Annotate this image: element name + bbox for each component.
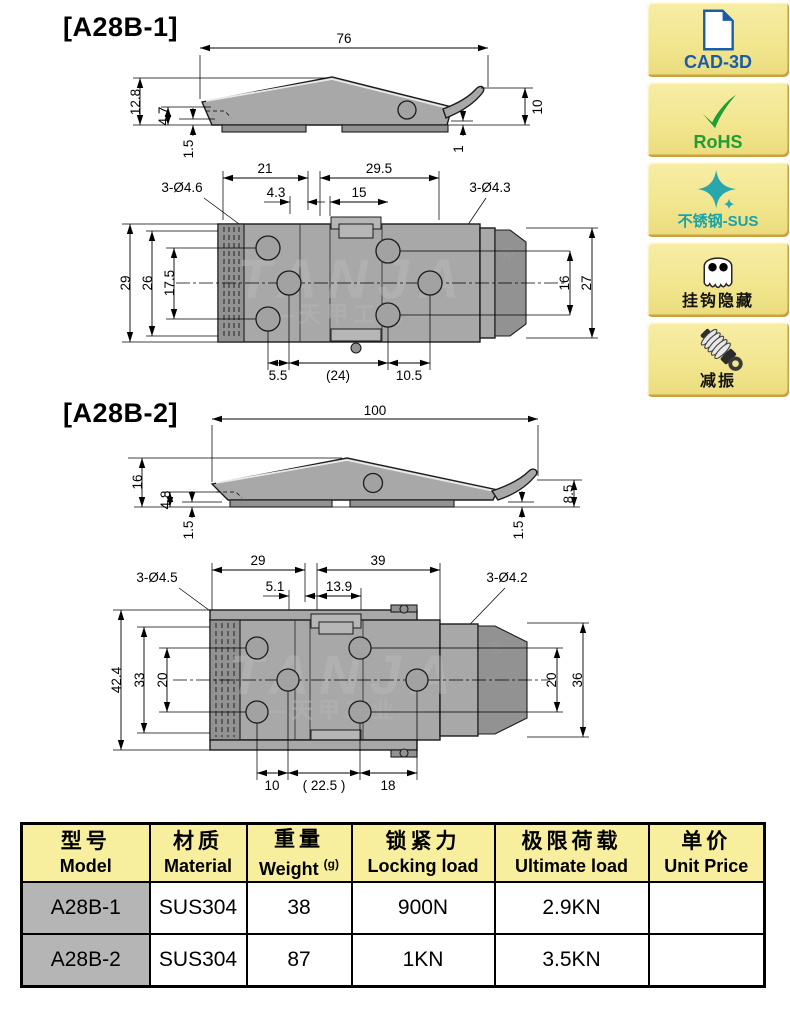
header-ultimate-load: 极限荷载 Ultimate load [495,824,649,883]
a28b1-top-view-drawing: 21 29.5 4.3 15 3-Ø4.6 3-Ø4.3 TANJA —天甲工业… [118,158,640,398]
dim-label: 1 [451,145,466,153]
badge-label: 减振 [700,373,736,391]
dim-label: 1.5 [181,140,196,159]
feature-badges: CAD-3D RoHS 不锈钢-SUS [647,2,789,402]
badge-label: CAD-3D [684,53,752,71]
registered-mark: ® [500,245,514,266]
header-model: 型号 Model [22,824,150,883]
pivot-hole [398,101,416,119]
ghost-icon [696,248,740,292]
table-row: A28B-2 SUS304 87 1KN 3.5KN [22,934,765,987]
hole-callout-left: 3-Ø4.6 [161,180,202,195]
mount-hole [406,669,428,691]
datasheet-page: [A28B-1] [A28B-2] 76 12.8 4.7 1.5 [0,0,790,1016]
dim-label: 12.8 [128,89,143,115]
cell-model: A28B-2 [22,934,150,987]
dim-label: 20 [155,672,170,687]
mount-hole [246,701,268,723]
dim-label: 1.5 [181,521,196,540]
dim-label: 76 [336,31,351,46]
a28b1-side-view-drawing: 76 12.8 4.7 1.5 10 1 [75,25,565,165]
dim-label: 13.9 [326,579,352,594]
dim-label: 29 [118,275,133,290]
dim-label: (24) [326,368,350,383]
mount-hole [349,701,371,723]
cell-unit-price [649,882,765,934]
mount-hole [418,271,442,295]
dim-label: 20 [544,672,559,687]
dim-label: 29.5 [366,161,392,176]
dim-label: 5.1 [266,579,285,594]
cell-weight: 87 [247,934,352,987]
mount-hole [349,637,371,659]
dim-label: 8.5 [561,485,576,504]
mount-hole [277,669,299,691]
badge-sus: 不锈钢-SUS [647,162,789,237]
latch-hook [443,86,484,118]
a28b2-side-view-drawing: 100 16 4.8 1.5 1.5 8.5 [78,408,598,543]
latch-hook [492,469,537,500]
mount-hole [376,239,400,263]
cell-ultimate-load: 2.9KN [495,882,649,934]
pivot-hole [364,474,383,493]
cell-locking-load: 1KN [352,934,495,987]
cell-material: SUS304 [150,882,247,934]
dim-label: 17.5 [162,270,177,296]
dim-label: 16 [557,275,572,290]
badge-damping: 减振 [647,322,789,397]
dim-label: 29 [250,553,265,568]
badge-cad-3d: CAD-3D [647,2,789,77]
dim-label: 36 [570,672,585,687]
dim-label: 26 [140,275,155,290]
latch-body-side [212,458,498,500]
dim-label: 1.5 [511,521,526,540]
mount-hole [246,637,268,659]
registered-mark: ® [489,638,503,659]
dim-label: 5.5 [269,368,288,383]
dim-label: 39 [370,553,385,568]
mount-hole [256,307,280,331]
bottom-plate [210,740,417,750]
spec-table: 型号 Model 材质 Material 重量 Weight (g) 锁紧力 L… [20,822,766,988]
brand-watermark-cn: —天甲工业— [272,302,434,327]
badge-label: 挂钩隐藏 [682,293,754,311]
dim-label: 10 [264,778,279,793]
header-unit-price: 单价 Unit Price [649,824,765,883]
mount-hole [256,236,280,260]
dim-label: 15 [351,185,366,200]
cell-weight: 38 [247,882,352,934]
dim-label: 100 [364,403,387,418]
cell-locking-load: 900N [352,882,495,934]
cell-model: A28B-1 [22,882,150,934]
cell-ultimate-load: 3.5KN [495,934,649,987]
screw-detail [351,343,361,353]
badge-label: RoHS [694,133,743,151]
table-header-row: 型号 Model 材质 Material 重量 Weight (g) 锁紧力 L… [22,824,765,883]
latch-body-side [202,77,452,125]
dim-label: 4.7 [156,107,171,126]
badge-rohs: RoHS [647,82,789,157]
mount-hole [376,303,400,327]
dim-label: 10.5 [396,368,422,383]
dim-label: 33 [132,672,147,687]
dim-label: 21 [257,161,272,176]
dim-label: 42.4 [109,666,124,693]
checkmark-icon [694,88,742,132]
sparkle-icon [695,168,741,212]
hole-callout-right: 3-Ø4.2 [486,570,527,585]
cell-unit-price [649,934,765,987]
header-weight: 重量 Weight (g) [247,824,352,883]
badge-label: 不锈钢-SUS [678,213,759,231]
hole-callout-left: 3-Ø4.5 [136,570,177,585]
dim-label: ( 22.5 ) [303,778,346,793]
dim-label: 27 [579,275,594,290]
dim-label: 4.3 [267,185,286,200]
header-material: 材质 Material [150,824,247,883]
shock-absorber-icon [695,328,741,372]
dim-label: 10 [530,99,545,114]
cell-material: SUS304 [150,934,247,987]
a28b2-top-view-drawing: 29 39 5.1 13.9 3-Ø4.5 3-Ø4.2 [95,550,640,795]
mount-hole [277,271,301,295]
header-locking-load: 锁紧力 Locking load [352,824,495,883]
dim-label: 4.8 [158,491,173,510]
badge-hidden-hook: 挂钩隐藏 [647,242,789,317]
dim-label: 18 [380,778,395,793]
hole-callout-right: 3-Ø4.3 [469,180,510,195]
dim-label: 16 [130,474,145,489]
table-row: A28B-1 SUS304 38 900N 2.9KN [22,882,765,934]
cad-document-icon [697,8,739,52]
